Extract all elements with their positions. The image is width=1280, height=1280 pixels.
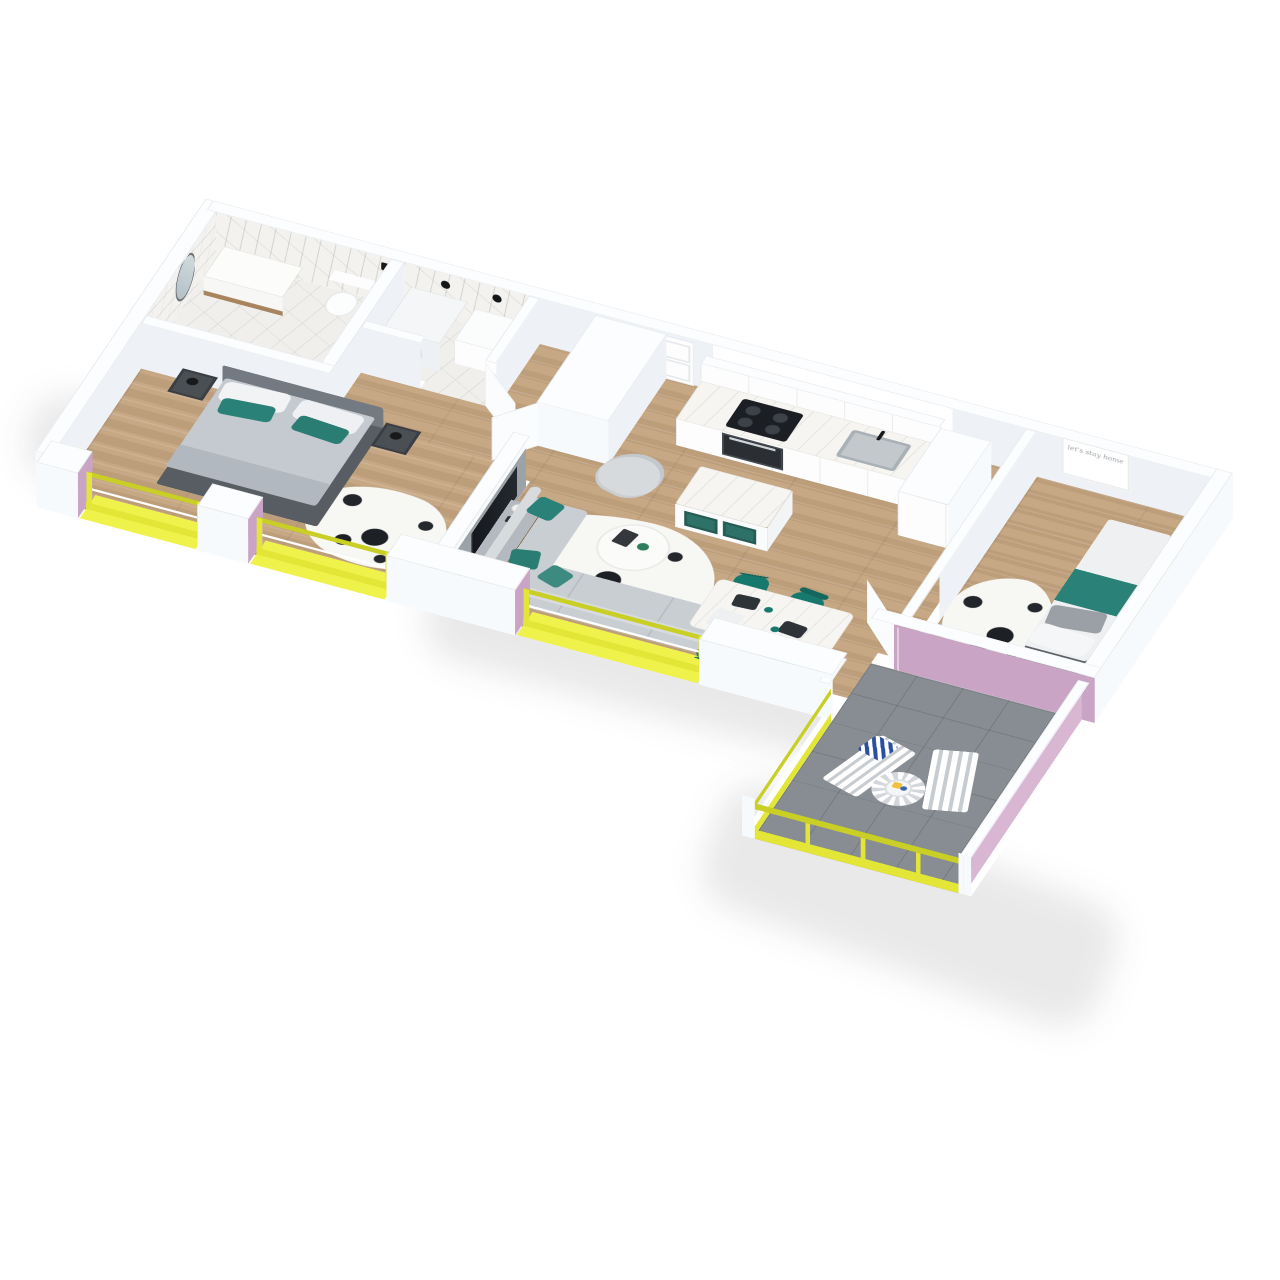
balcony-corner-pier (958, 853, 971, 897)
balcony-rail-post (861, 838, 866, 869)
balcony-rail-post (805, 823, 810, 854)
facade-pier-face (36, 462, 77, 518)
balcony-rail-post (916, 852, 921, 883)
floor-plan-render: { "scene": { "type": "isometric-3d-floor… (0, 0, 1280, 1280)
